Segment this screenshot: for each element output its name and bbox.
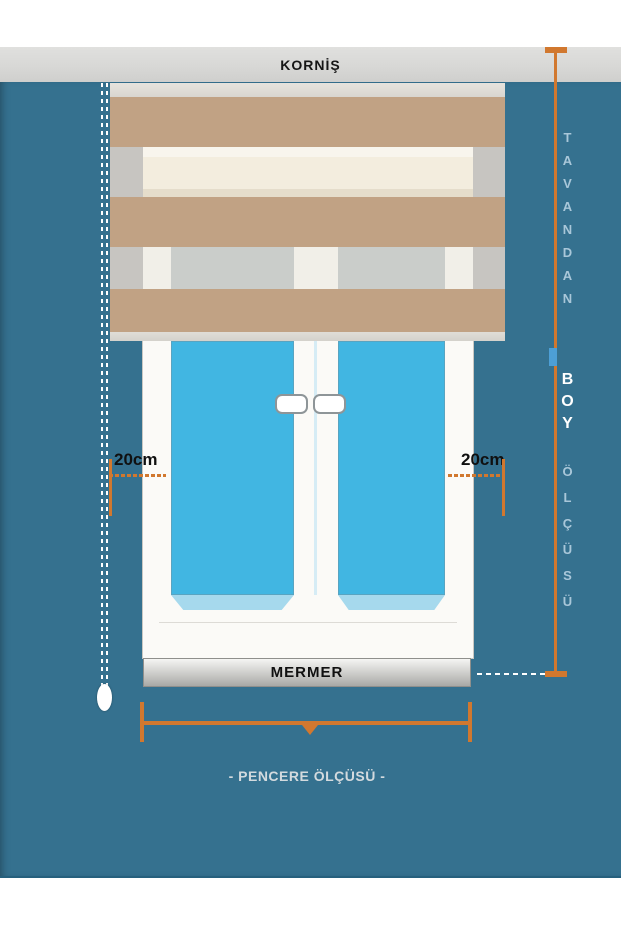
sheer-over-window-frame xyxy=(143,147,473,197)
sheer-over-wall xyxy=(473,147,505,197)
sheer-over-frame-post xyxy=(294,247,338,289)
sheer-over-frame-post xyxy=(445,247,473,289)
blind-stripe-tan-2 xyxy=(110,197,505,247)
sill-level-dashed-line xyxy=(477,673,549,675)
blind-stripe-sheer-1 xyxy=(110,147,505,197)
width-measure-center-arrow xyxy=(302,725,318,735)
marble-sill: MERMER xyxy=(143,658,471,687)
sheer-over-wall xyxy=(110,247,143,289)
sash-gap xyxy=(314,341,317,595)
glass-pane-right xyxy=(338,341,445,595)
sheer-over-glass xyxy=(171,247,294,289)
window-width-label: - PENCERE ÖLÇÜSÜ - xyxy=(143,768,471,784)
glass-bevel-left xyxy=(171,595,294,610)
offset-tick-left xyxy=(109,459,112,516)
offset-label-right: 20cm xyxy=(461,450,504,470)
sheer-over-frame-post xyxy=(143,247,171,289)
window-handle-left xyxy=(275,394,308,414)
pull-cord-line-left xyxy=(101,83,103,687)
offset-tick-right xyxy=(502,459,505,516)
height-measure-marker xyxy=(549,348,557,366)
marble-sill-label: MERMER xyxy=(271,664,344,681)
offset-line-left xyxy=(109,474,166,477)
blind-cassette xyxy=(110,83,505,97)
ceiling-strip xyxy=(0,0,621,47)
width-measure-tick-left xyxy=(140,702,144,742)
offset-label-left: 20cm xyxy=(114,450,157,470)
width-measure-tick-right xyxy=(468,702,472,742)
sheer-over-wall xyxy=(110,147,143,197)
height-measure-cap-top xyxy=(545,47,567,53)
height-label-tavandan: TAVANDAN xyxy=(560,130,575,314)
window-handle-right xyxy=(313,394,346,414)
glass-pane-left xyxy=(171,341,294,595)
sheer-over-wall xyxy=(473,247,505,289)
blind-stripe-sheer-2 xyxy=(110,247,505,289)
pull-cord-line-right xyxy=(106,83,108,687)
floor-strip xyxy=(0,878,621,931)
sheer-over-glass xyxy=(338,247,445,289)
offset-line-right xyxy=(448,474,505,477)
blind-stripe-tan-1 xyxy=(110,97,505,147)
cornice-label: KORNİŞ xyxy=(280,57,340,73)
blind-measurement-diagram: KORNİŞ xyxy=(0,0,621,931)
height-label-olcusu: ÖLÇÜSÜ xyxy=(560,464,575,620)
blind-stripe-tan-3 xyxy=(110,289,505,332)
cord-pull-end xyxy=(97,684,112,711)
zebra-blind xyxy=(110,83,505,341)
window xyxy=(143,341,473,658)
glass-bevel-right xyxy=(338,595,445,610)
blind-bottom-bar xyxy=(110,332,505,341)
height-label-boy: BOY xyxy=(558,371,576,437)
frame-step-line xyxy=(159,622,457,623)
cornice-band: KORNİŞ xyxy=(0,47,621,82)
